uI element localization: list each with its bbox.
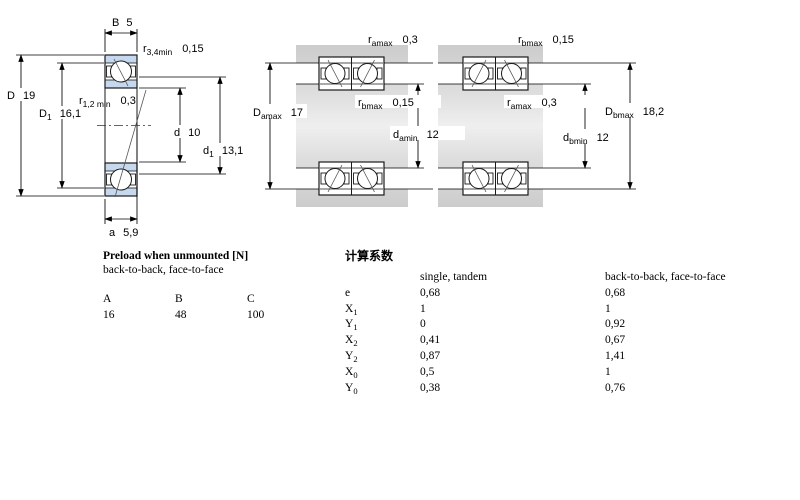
factor-value: 1 — [605, 303, 775, 319]
ball — [111, 169, 132, 190]
factors-col1-header: single, tandem — [420, 271, 605, 287]
preload-table: Preload when unmounted [N] back-to-back,… — [103, 249, 307, 325]
preload-value: 48 — [175, 309, 247, 325]
factor-symbol: Y1 — [345, 318, 420, 334]
factor-value: 0,5 — [420, 366, 605, 382]
factor-value: 0,68 — [605, 287, 775, 303]
label-D1: D116,1 — [39, 108, 81, 122]
factors-table: 计算系数 single, tandem back-to-back, face-t… — [345, 249, 775, 397]
label-B: B5 — [112, 17, 132, 29]
factor-value: 0,41 — [420, 334, 605, 350]
factor-value: 0,76 — [605, 382, 775, 398]
preload-col-header: A — [103, 293, 175, 309]
label-r12min: r1,2 min0,3 — [79, 95, 136, 109]
factor-symbol: X0 — [345, 366, 420, 382]
factor-value: 0 — [420, 318, 605, 334]
preload-value: 100 — [247, 309, 307, 325]
label-r34min: r3,4min0,15 — [143, 43, 204, 57]
factor-symbol: X2 — [345, 334, 420, 350]
bearing-datasheet-page: B5 r3,4min0,15 r1,2 min0,3 D19 D116,1 d1… — [0, 0, 800, 500]
factor-value: 1,41 — [605, 350, 775, 366]
dim-outer-diameter-D — [16, 55, 104, 196]
factor-value: 0,92 — [605, 318, 775, 334]
label-d1: d113,1 — [203, 145, 243, 159]
ball — [111, 61, 132, 82]
factor-value: 1 — [605, 366, 775, 382]
factors-col2-header: back-to-back, face-to-face — [605, 271, 775, 287]
preload-col-header: C — [247, 293, 307, 309]
factor-value: 0,38 — [420, 382, 605, 398]
factor-symbol: Y2 — [345, 350, 420, 366]
preload-subtitle: back-to-back, face-to-face — [103, 263, 307, 277]
figure-pair-face-to-face — [438, 45, 636, 207]
factors-title: 计算系数 — [345, 249, 775, 264]
factor-symbol: X1 — [345, 303, 420, 319]
factor-value: 0,68 — [420, 287, 605, 303]
preload-title: Preload when unmounted [N] — [103, 249, 307, 263]
bearing-diagrams: B5 r3,4min0,15 r1,2 min0,3 D19 D116,1 d1… — [0, 0, 800, 245]
factor-symbol: e — [345, 287, 420, 303]
dim-shoulder-diameter-D1 — [57, 63, 104, 188]
label-rbmax-pair-b: rbmax0,15 — [518, 34, 574, 48]
factor-value: 0,67 — [605, 334, 775, 350]
label-d: d10 — [174, 127, 200, 139]
label-a: a5,9 — [109, 227, 138, 239]
dim-width-B — [105, 29, 137, 52]
factor-symbol: Y0 — [345, 382, 420, 398]
factor-value: 0,87 — [420, 350, 605, 366]
figure-single-bearing — [97, 55, 151, 197]
preload-col-header: B — [175, 293, 247, 309]
factor-value: 1 — [420, 303, 605, 319]
preload-value: 16 — [103, 309, 175, 325]
